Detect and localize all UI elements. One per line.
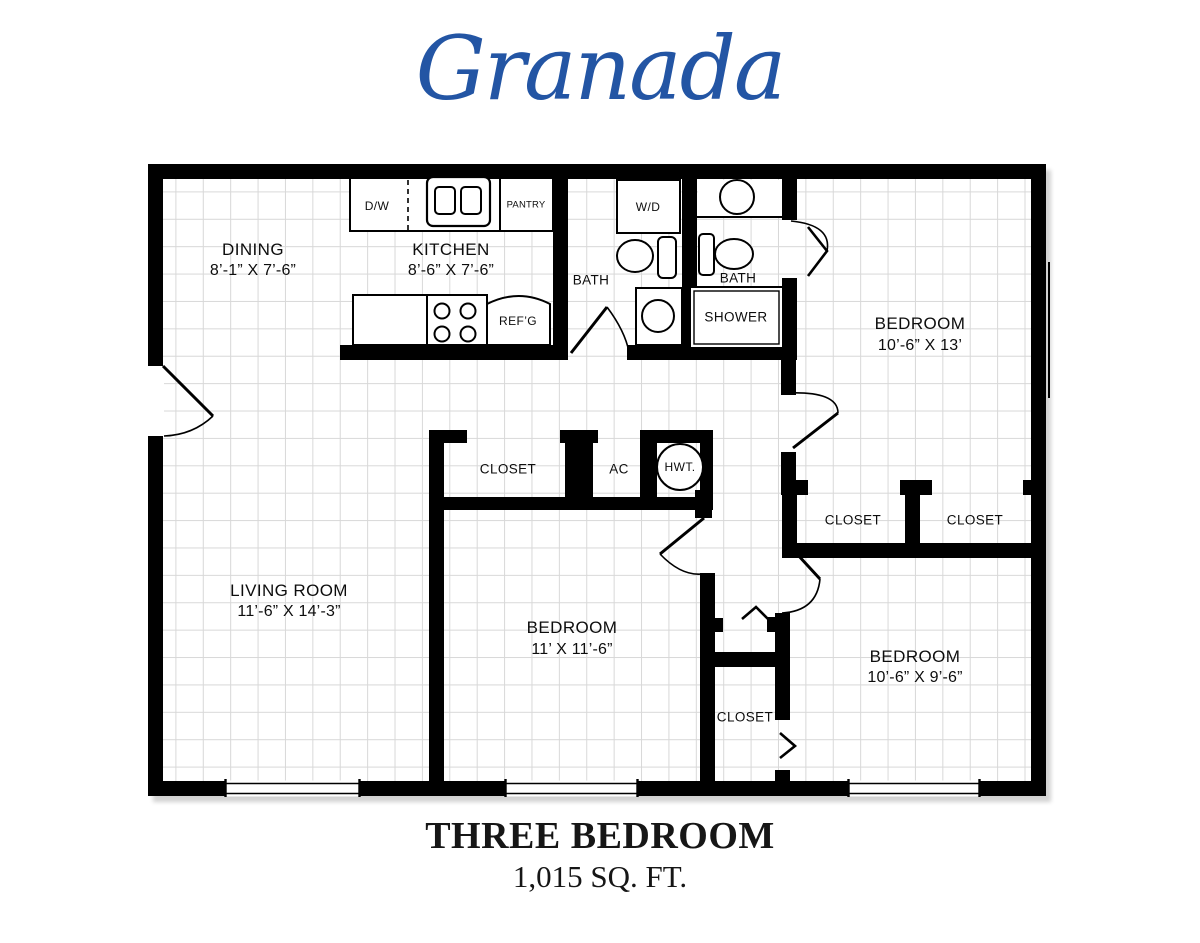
room-label-closet-bottom: CLOSET	[717, 710, 773, 725]
plan-type: THREE BEDROOM	[0, 814, 1200, 858]
hall-closet-door	[742, 607, 770, 621]
room-dims-bedroom1: 10’-6” X 13’	[878, 337, 962, 355]
room-label-kitchen: KITCHEN	[412, 240, 489, 260]
window-living-room	[225, 779, 360, 797]
room-dims-kitchen: 8’-6” X 7’-6”	[408, 262, 494, 280]
room-label-dining: DINING	[222, 240, 284, 260]
room-dims-dining: 8’-1” X 7’-6”	[210, 262, 296, 280]
room-dims-bedroom3: 10’-6” X 9’-6”	[867, 669, 962, 687]
room-label-ac: AC	[609, 462, 629, 477]
bedroom1-door	[787, 393, 838, 448]
room-label-bedroom2: BEDROOM	[527, 618, 618, 638]
plan-footer: THREE BEDROOM 1,015 SQ. FT.	[0, 814, 1200, 895]
master-bath-door	[791, 221, 828, 276]
room-label-bedroom3: BEDROOM	[870, 647, 961, 667]
room-label-hall-closet: CLOSET	[480, 462, 536, 477]
room-label-bedroom1: BEDROOM	[875, 314, 966, 334]
bedroom2-door	[660, 518, 704, 574]
room-dims-bedroom2: 11’ X 11’-6”	[531, 641, 612, 659]
label-dishwasher: D/W	[365, 199, 390, 213]
label-refrigerator: REF’G	[499, 314, 537, 328]
room-label-bath2: BATH	[720, 271, 757, 286]
label-washer-dryer: W/D	[636, 200, 661, 214]
room-label-living: LIVING ROOM	[230, 581, 348, 601]
label-shower: SHOWER	[704, 310, 767, 325]
label-pantry: PANTRY	[507, 200, 546, 211]
room-label-closet-right1: CLOSET	[825, 513, 881, 528]
plan-title: Granada	[0, 14, 1200, 124]
front-door-opening	[147, 366, 164, 436]
bath1-sink-icon	[636, 288, 682, 345]
bath2-sink-icon	[697, 180, 782, 217]
room-dims-living: 11’-6” X 14’-3”	[237, 603, 340, 621]
front-door	[163, 366, 213, 436]
floor-plan: DINING 8’-1” X 7’-6” KITCHEN 8’-6” X 7’-…	[148, 164, 1046, 796]
floor-plan-page: Granada	[0, 0, 1200, 943]
counter	[353, 295, 427, 345]
bath1-door	[571, 307, 629, 353]
window-bedroom-middle	[505, 779, 638, 797]
bath1-toilet-icon	[617, 237, 676, 278]
label-water-heater: HWT.	[665, 460, 696, 474]
room-label-bath1: BATH	[573, 273, 610, 288]
plan-area: 1,015 SQ. FT.	[0, 859, 1200, 895]
window-bedroom-right	[848, 779, 980, 797]
room-label-closet-right2: CLOSET	[947, 513, 1003, 528]
bath2-toilet-icon	[699, 234, 753, 275]
bedroom3-door	[782, 554, 820, 613]
bedroom3-closet-door	[780, 733, 795, 758]
